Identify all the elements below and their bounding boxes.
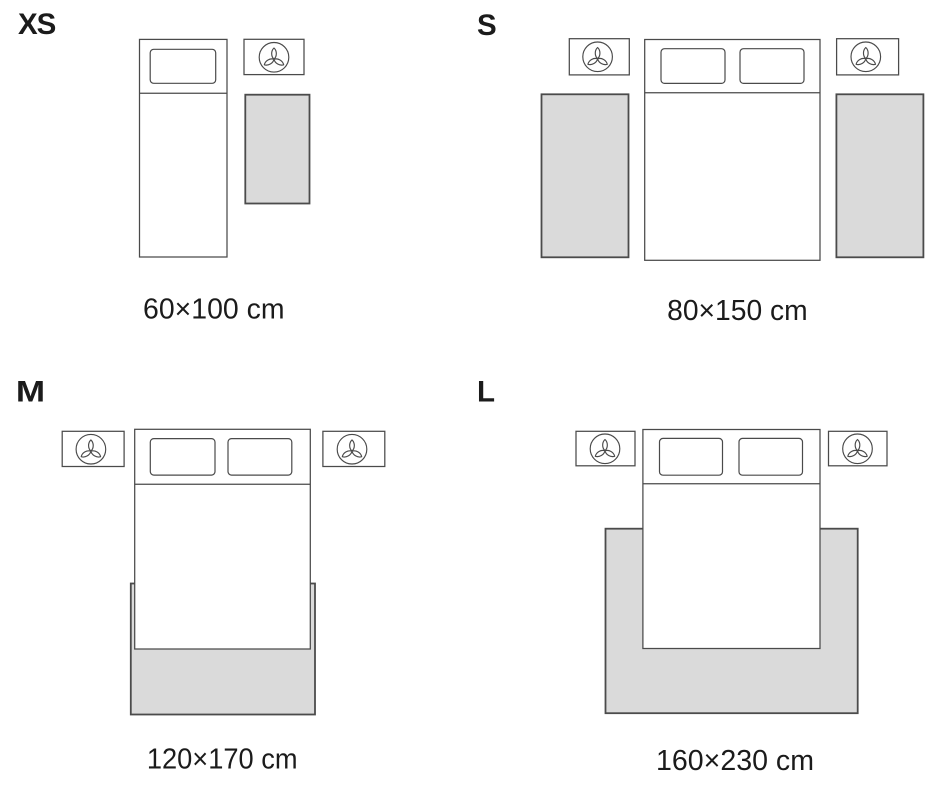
svg-text:160×230 cm: 160×230 cm — [656, 745, 814, 777]
svg-text:80×150 cm: 80×150 cm — [667, 295, 808, 327]
svg-text:L: L — [477, 376, 495, 409]
svg-text:60×100 cm: 60×100 cm — [143, 294, 285, 326]
svg-text:M: M — [16, 375, 45, 408]
svg-text:S: S — [477, 9, 496, 42]
svg-text:120×170 cm: 120×170 cm — [147, 744, 298, 776]
svg-text:XS: XS — [18, 8, 56, 41]
